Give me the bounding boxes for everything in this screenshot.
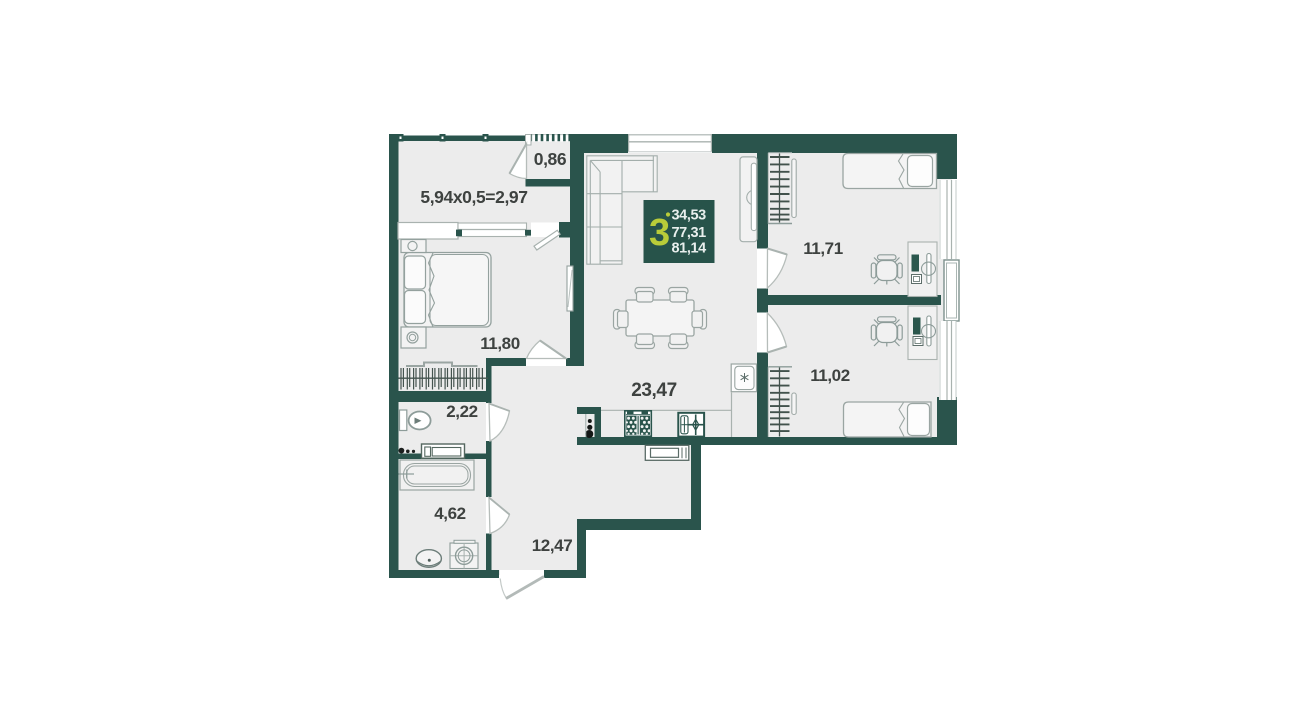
svg-text:0,86: 0,86 <box>534 149 567 169</box>
svg-text:11,71: 11,71 <box>803 239 843 258</box>
svg-text:23,47: 23,47 <box>631 380 677 401</box>
svg-text:5,94x0,5=2,97: 5,94x0,5=2,97 <box>420 187 527 207</box>
svg-text:11,80: 11,80 <box>480 334 520 353</box>
svg-text:12,47: 12,47 <box>532 536 573 555</box>
svg-text:11,02: 11,02 <box>810 366 850 385</box>
svg-text:77,31: 77,31 <box>672 225 707 241</box>
svg-text:2,22: 2,22 <box>446 402 478 421</box>
svg-text:4,62: 4,62 <box>434 504 466 523</box>
svg-text:34,53: 34,53 <box>672 208 707 224</box>
svg-text:3: 3 <box>649 212 670 254</box>
svg-text:81,14: 81,14 <box>672 241 707 257</box>
